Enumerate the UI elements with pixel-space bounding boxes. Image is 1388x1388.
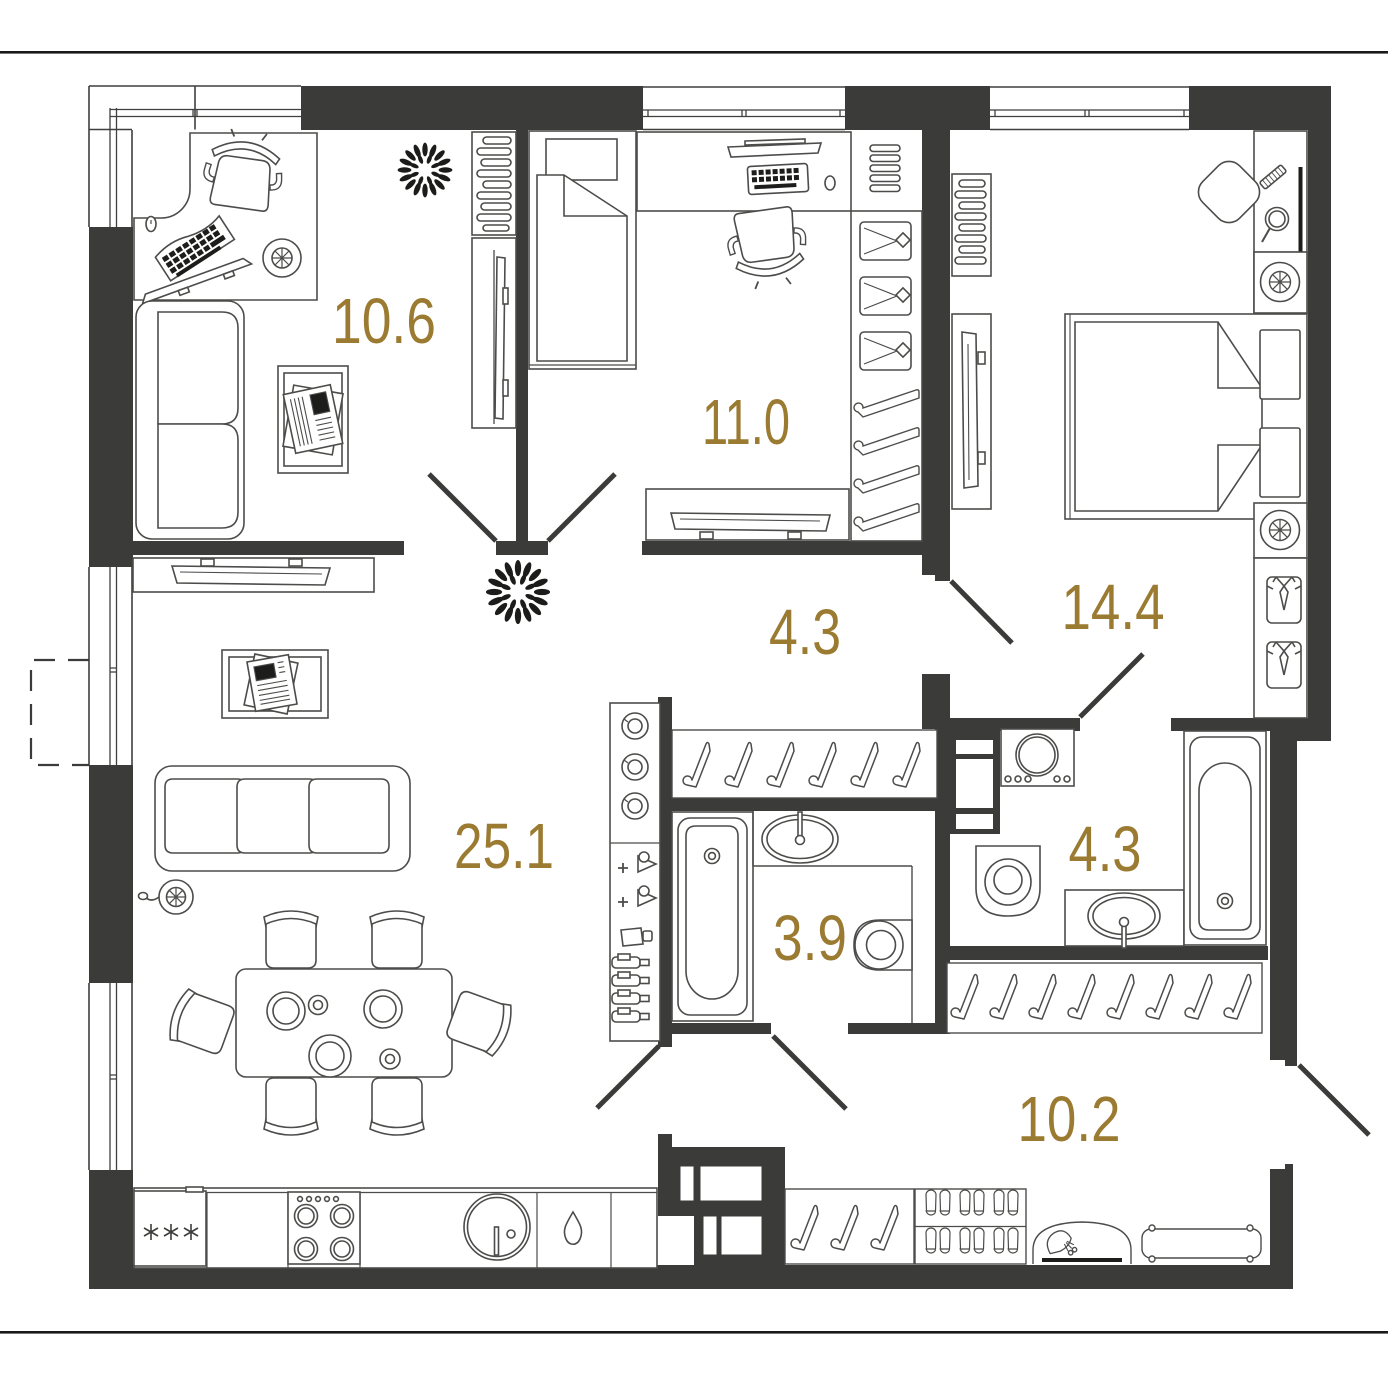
svg-text:4.3: 4.3	[769, 596, 841, 668]
svg-text:10.2: 10.2	[1018, 1083, 1121, 1155]
svg-text:4.3: 4.3	[1069, 813, 1142, 885]
svg-text:10.6: 10.6	[332, 285, 436, 357]
svg-text:3.9: 3.9	[773, 902, 847, 974]
svg-text:14.4: 14.4	[1062, 571, 1165, 643]
svg-text:11.0: 11.0	[702, 386, 790, 458]
svg-text:25.1: 25.1	[454, 810, 554, 882]
